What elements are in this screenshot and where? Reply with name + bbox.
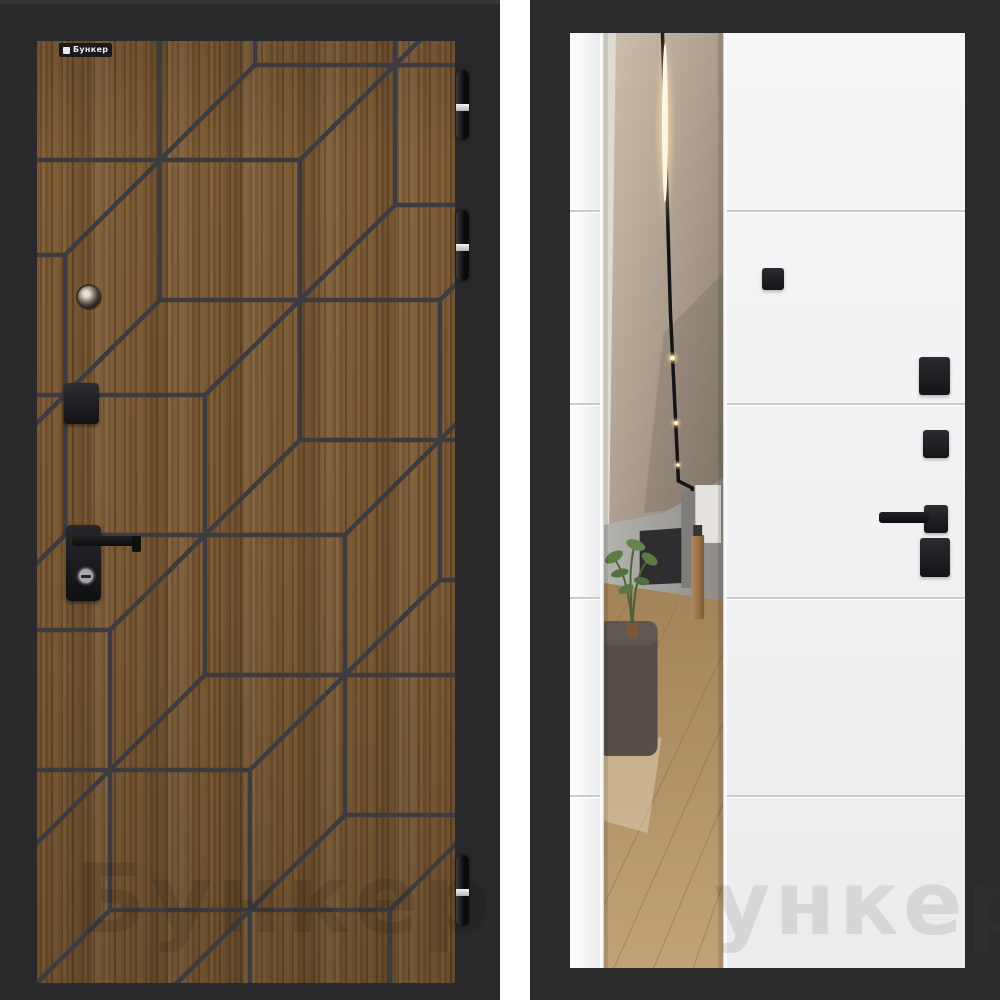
panel-seam [727, 403, 965, 405]
panel-left-stile [570, 33, 601, 968]
door-handle-lever [72, 536, 141, 546]
peephole-cover [762, 268, 784, 290]
mirror-reflection-scene [604, 33, 723, 968]
hinge-bottom [456, 855, 469, 926]
interior-handle-lever [879, 512, 929, 523]
brand-logo-icon [63, 47, 70, 54]
cylinder-thumbturn [75, 566, 97, 588]
mirror-edge-shade [604, 33, 608, 968]
hinge-pin-band [456, 244, 469, 251]
panel-seam [727, 597, 965, 599]
wood-panel [37, 41, 455, 983]
door-exterior-image: Бункер Бункер [0, 0, 500, 1000]
lock-cover-upper [919, 357, 950, 395]
hinge-pin-band [456, 104, 469, 111]
peephole [78, 286, 100, 308]
door-interior-image: ункер [530, 0, 1000, 1000]
brand-logo: Бункер [59, 43, 112, 57]
hinge-middle [456, 210, 469, 281]
mirror-strip [604, 33, 723, 968]
panel-seam [570, 597, 600, 599]
panel-seam [570, 210, 600, 212]
reflected-sofa [604, 621, 658, 756]
panel-seam [727, 795, 965, 797]
panel-seam [727, 210, 965, 212]
hinge-pin-band [456, 889, 469, 896]
interior-thumbturn-cover [920, 538, 950, 577]
lock-cover-lower [923, 430, 949, 458]
frame-top-highlight [0, 0, 500, 4]
panel-seam [570, 403, 600, 405]
brand-logo-text: Бункер [73, 46, 108, 54]
interior-panel: ункер [570, 33, 965, 968]
lock-cover [64, 383, 99, 424]
product-render: Бункер Бункер [0, 0, 1000, 1000]
panel-seam [570, 795, 600, 797]
panel-main-leaf [727, 33, 965, 968]
reflected-stand [691, 525, 704, 619]
cube-pattern [37, 41, 455, 983]
hinge-top [456, 70, 469, 140]
